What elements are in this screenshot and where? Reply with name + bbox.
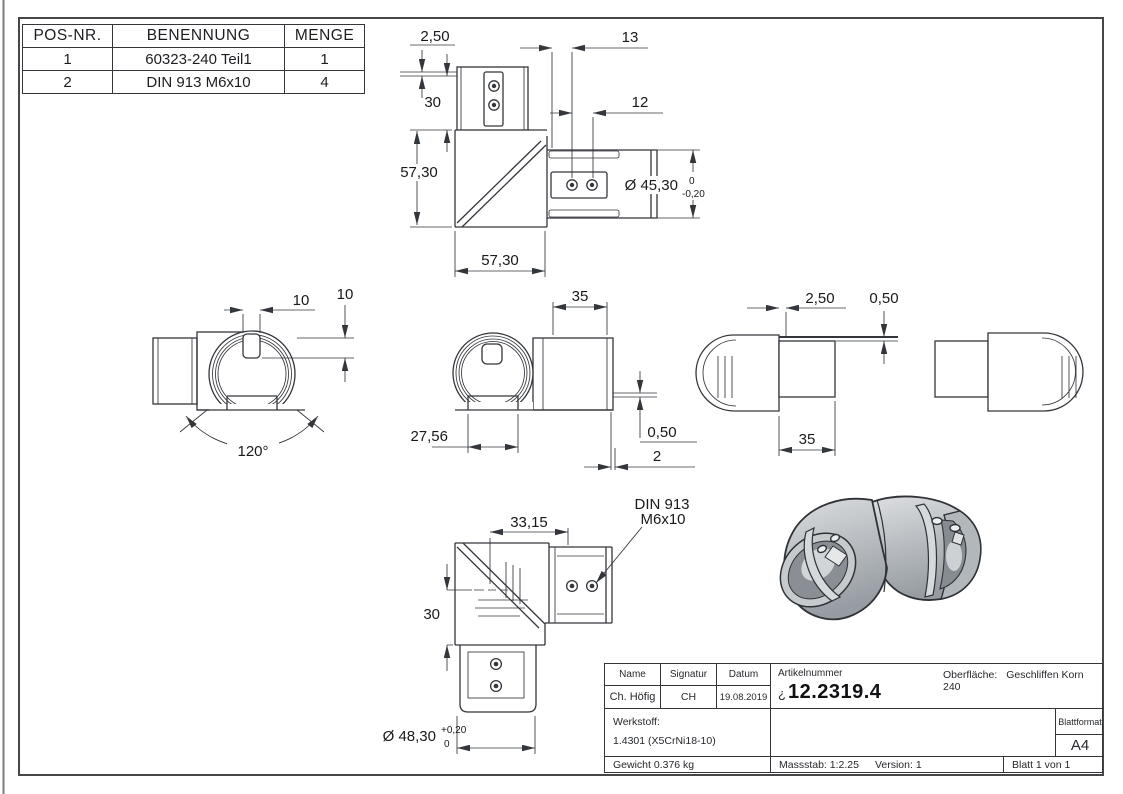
dim-label: 13: [622, 29, 639, 46]
view-axial-left: 120° 10 10: [153, 286, 354, 460]
dim-label: 2,50: [420, 28, 449, 45]
article-number: ¿12.2319.4: [778, 681, 881, 704]
dim-label: Ø 45,30: [625, 177, 678, 194]
header-pos-nr: POS-NR.: [23, 25, 113, 48]
preview-3d-part: [765, 496, 980, 621]
dim-lip-050-center: 0,50: [613, 371, 697, 442]
table-row: 1 60323-240 Teil1 1: [23, 48, 365, 71]
dim-30-bottom: 30: [423, 564, 472, 671]
weight-value: Gewicht 0.376 kg: [605, 756, 771, 773]
header-benennung: BENENNUNG: [113, 25, 285, 48]
dim-label: 27,56: [410, 428, 448, 445]
dim-label: 35: [799, 431, 816, 448]
view-front-elbow: 2,50 30 13 12 57,30: [393, 28, 714, 547]
slot-opening: [482, 344, 502, 364]
value-signatur: CH: [661, 686, 717, 709]
tolerance-upper: +0,20: [441, 725, 467, 736]
clamp-plate-top: [484, 72, 503, 126]
table-header-row: POS-NR. BENENNUNG MENGE: [23, 25, 365, 48]
dim-dia-4530: Ø 45,30 0 -0,20: [612, 150, 714, 218]
scale-value: Massstab: 1:2.25: [779, 759, 859, 771]
dim-13: 13: [520, 29, 648, 178]
label-artikelnummer: Artikelnummer: [778, 668, 842, 679]
dim-label: 2,50: [805, 290, 834, 307]
cell-benennung: DIN 913 M6x10: [113, 71, 285, 94]
dim-lip-250-side: 2,50: [747, 290, 846, 337]
article-cell: Artikelnummer ¿12.2319.4 Oberfläche: Ges…: [771, 664, 1104, 709]
note-line2: M6x10: [640, 511, 685, 528]
tolerance-lower: 0: [444, 739, 450, 750]
cell-benennung: 60323-240 Teil1: [113, 48, 285, 71]
label-datum: Datum: [717, 664, 771, 686]
dim-lip-250: 2,50: [410, 28, 455, 98]
dim-body-height: 57,30: [393, 130, 452, 227]
label-werkstoff: Werkstoff:: [613, 716, 660, 728]
dim-label: 12: [632, 94, 649, 111]
label-signatur: Signatur: [661, 664, 717, 686]
cell-pos: 2: [23, 71, 113, 94]
dim-label: 57,30: [400, 164, 438, 181]
value-name: Ch. Höfig: [605, 686, 661, 709]
dim-label: 120°: [237, 443, 268, 460]
material-value: 1.4301 (X5CrNi18-10): [613, 735, 716, 747]
dim-label: 57,30: [481, 252, 519, 269]
drawing-page: 2,50 30 13 12 57,30: [0, 0, 1123, 794]
table-row: 2 DIN 913 M6x10 4: [23, 71, 365, 94]
tolerance-upper: 0: [689, 176, 695, 187]
format-cell: Blattformat A4: [1056, 709, 1104, 756]
dim-label: 10: [293, 292, 310, 309]
dim-slot-width: 10: [224, 292, 315, 333]
cell-pos: 1: [23, 48, 113, 71]
label-blattformat: Blattformat: [1056, 709, 1104, 735]
article-number-value: 12.2319.4: [788, 681, 881, 703]
dim-step-050: 0,50: [836, 290, 899, 364]
view-side-left: 2,50 0,50 35: [696, 290, 899, 456]
dim-label: 0,50: [647, 424, 676, 441]
dim-label: 30: [423, 606, 440, 623]
title-block: Name Signatur Datum Ch. Höfig CH 19.08.2…: [604, 663, 1103, 773]
cell-menge: 1: [285, 48, 365, 71]
value-datum: 19.08.2019: [717, 686, 771, 709]
dim-35-center: 35: [553, 288, 607, 335]
dim-35-side: 35: [779, 401, 835, 456]
dim-label: 0,50: [869, 290, 898, 307]
dim-body-width: 57,30: [455, 231, 545, 277]
header-menge: MENGE: [285, 25, 365, 48]
tolerance-lower: -0,20: [682, 189, 705, 200]
view-axial-center: 35 27,56 0,50 2: [410, 288, 697, 470]
label-oberflaeche: Oberfläche:: [943, 669, 997, 681]
view-side-right: [935, 333, 1083, 411]
dim-collar-30: 30: [424, 54, 447, 152]
dim-label: 30: [424, 94, 441, 111]
article-prefix: ¿: [778, 686, 786, 701]
dim-label: Ø 48,30: [383, 728, 436, 745]
sheet-value: Blatt 1 von 1: [1004, 756, 1104, 773]
slot-opening: [243, 334, 260, 358]
parts-list-table: POS-NR. BENENNUNG MENGE 1 60323-240 Teil…: [22, 24, 365, 94]
label-name: Name: [605, 664, 661, 686]
dim-dia-4830: Ø 48,30 +0,20 0: [383, 716, 535, 754]
dim-label: 2: [653, 448, 661, 465]
dim-label: 33,15: [510, 514, 548, 531]
sheet-format-value: A4: [1056, 735, 1104, 756]
dim-label: 35: [572, 288, 589, 305]
dim-12: 12: [550, 94, 663, 178]
callout-din913: DIN 913 M6x10: [596, 496, 690, 583]
scale-cell: Massstab: 1:2.25 Version: 1: [771, 756, 1004, 773]
material-cell: Werkstoff: 1.4301 (X5CrNi18-10): [605, 709, 771, 756]
version-value: Version: 1: [875, 759, 922, 771]
dim-edge-2: 2: [584, 412, 695, 470]
dim-label: 10: [337, 286, 354, 303]
empty-cell: [771, 709, 1056, 756]
cell-menge: 4: [285, 71, 365, 94]
surface-spec: Oberfläche: Geschliffen Korn 240: [943, 669, 1104, 693]
clamp-plate-right: [551, 172, 607, 198]
dim-3315: 33,15: [490, 514, 568, 584]
